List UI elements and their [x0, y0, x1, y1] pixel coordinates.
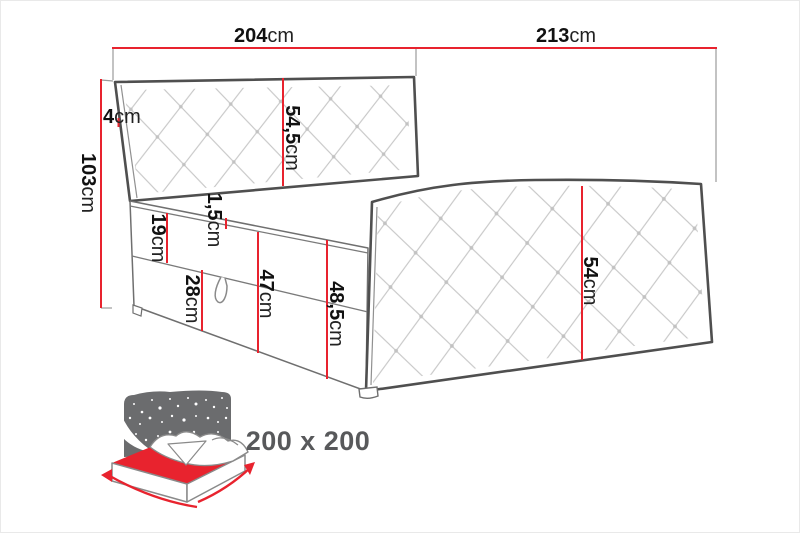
dim-label-total-height: 103cm [77, 153, 99, 213]
sleeping-area-size: 200 x 200 [246, 426, 371, 456]
bed-foot-front [359, 387, 378, 398]
dim-label-base-side: 47cm [255, 270, 277, 319]
dim-label-width: 204cm [234, 25, 294, 47]
dim-label-depth: 213cm [536, 25, 596, 47]
dim-label-storage-box: 28cm [181, 275, 203, 324]
dim-label-topper-layer: 1,5cm [203, 193, 225, 247]
arrow-head-left [101, 469, 112, 482]
dim-label-base-side-total: 48,5cm [325, 281, 347, 347]
dim-label-headboard-edge: 4cm [103, 106, 141, 128]
dim-label-headboard-panel: 54,5cm [281, 105, 303, 171]
storage-bed-icon [101, 391, 255, 508]
dim-label-mattress-layer: 19cm [147, 214, 169, 263]
side-panel-quilt-pattern [373, 186, 705, 383]
dim-label-side-panel: 54cm [579, 257, 601, 306]
bed-dimension-diagram: 204cm 213cm 4cm 103cm 54,5cm 19cm 1,5cm … [0, 0, 800, 533]
diagram-canvas: 204cm 213cm 4cm 103cm 54,5cm 19cm 1,5cm … [0, 0, 800, 533]
